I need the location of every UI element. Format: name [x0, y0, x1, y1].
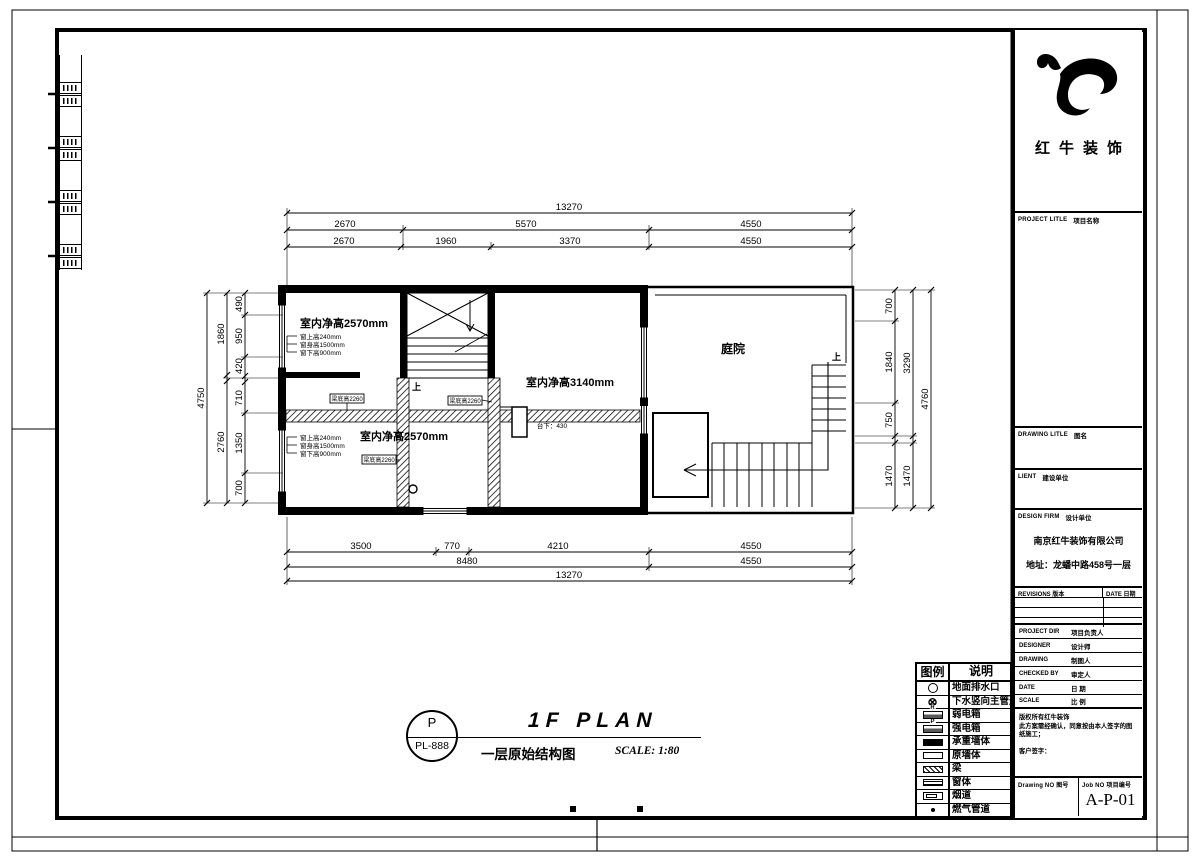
original-wall-icon	[923, 752, 943, 759]
legend-row: 燃气管道	[917, 804, 1010, 817]
plan-subtitle: 一层原始结构图	[481, 743, 576, 763]
title-block: 红牛装饰 PROJECT LITLE 项目名称 DRAWING LITLE 图名…	[1012, 30, 1142, 818]
svg-text:1470: 1470	[884, 465, 895, 486]
legend-row: 原墙体	[917, 750, 1010, 764]
designer-row: DESIGNER设计师	[1015, 639, 1142, 653]
signature-box	[59, 257, 82, 269]
svg-text:770: 770	[444, 541, 460, 552]
client-label-en: LIENT	[1018, 474, 1036, 480]
personnel-table: PROJECT DIR项目负责人 DESIGNER设计师 DRAWING制图人 …	[1015, 625, 1142, 710]
svg-text:1350: 1350	[234, 432, 245, 453]
floor-drain-icon	[928, 683, 938, 693]
legend-row: P 强电箱	[917, 723, 1010, 737]
svg-text:4550: 4550	[740, 556, 761, 567]
svg-text:420: 420	[234, 358, 245, 374]
legend-row: 梁	[917, 763, 1010, 777]
client-signature-line: 客户签字：	[1019, 748, 1138, 757]
design-firm-name: 南京红牛装饰有限公司	[1015, 534, 1142, 547]
svg-text:13270: 13270	[556, 202, 582, 213]
svg-text:4550: 4550	[740, 541, 761, 552]
svg-text:窗身高1500mm: 窗身高1500mm	[300, 441, 345, 450]
svg-text:700: 700	[884, 298, 895, 314]
svg-text:台下：430: 台下：430	[537, 421, 568, 430]
job-number: A-P-01	[1079, 790, 1142, 810]
load-bearing-wall-icon	[923, 739, 943, 746]
revision-row	[1015, 598, 1142, 608]
svg-text:窗下高900mm: 窗下高900mm	[300, 449, 341, 458]
signature-box	[59, 82, 82, 94]
title-underline	[408, 737, 701, 738]
svg-text:1470: 1470	[902, 465, 913, 486]
project-section: PROJECT LITLE 项目名称	[1015, 213, 1142, 428]
job-no-cell: Job NO 项目编号 A-P-01	[1079, 778, 1142, 816]
legend-row: 窗体	[917, 777, 1010, 791]
svg-text:950: 950	[234, 328, 245, 344]
dimension-labels: 13270 2670 5570 4550 2670 1960 3370 4550…	[196, 202, 931, 581]
legend-row: 承重墙体	[917, 736, 1010, 750]
svg-text:2670: 2670	[334, 219, 355, 230]
legend-table: 图例 说明 地面排水口 ⊗ 下水竖向主管道 R 弱电箱 P 强电箱 承重墙体 原…	[915, 662, 1012, 818]
svg-text:3290: 3290	[902, 352, 913, 373]
svg-text:室内净高2570mm: 室内净高2570mm	[300, 316, 388, 330]
beam-icon	[923, 766, 943, 773]
svg-text:490: 490	[234, 296, 245, 312]
design-firm-section: DESIGN FIRM 设计单位 南京红牛装饰有限公司 地址：龙蟠中路458号一…	[1015, 510, 1142, 588]
design-firm-label-zh: 设计单位	[1066, 512, 1092, 522]
svg-text:室内净高2570mm: 室内净高2570mm	[360, 429, 448, 443]
drawing-row: DRAWING制图人	[1015, 653, 1142, 667]
number-row: Drawing NO 图号 Job NO 项目编号 A-P-01	[1015, 778, 1142, 816]
svg-text:窗身高1500mm: 窗身高1500mm	[300, 340, 345, 349]
signature-strip	[59, 55, 82, 270]
signature-box	[59, 244, 82, 256]
bubble-code: PL-888	[406, 740, 458, 752]
svg-text:1960: 1960	[435, 236, 456, 247]
drawing-title-label-en: DRAWING LITLE	[1018, 432, 1068, 438]
signature-box	[59, 203, 82, 215]
revision-row	[1015, 608, 1142, 618]
svg-text:700: 700	[234, 480, 245, 496]
svg-text:窗上高240mm: 窗上高240mm	[300, 433, 341, 442]
drawing-no-label: Drawing NO 图号	[1018, 780, 1069, 789]
svg-text:室内净高3140mm: 室内净高3140mm	[526, 375, 614, 389]
flue-icon	[923, 792, 943, 800]
svg-text:1860: 1860	[216, 323, 227, 344]
svg-text:窗上高240mm: 窗上高240mm	[300, 332, 341, 341]
svg-text:4550: 4550	[740, 236, 761, 247]
project-label-en: PROJECT LITLE	[1018, 217, 1067, 223]
signature-box	[59, 136, 82, 148]
revisions-header: REVISIONS 版本	[1015, 588, 1103, 597]
svg-text:梁底高2260: 梁底高2260	[331, 395, 363, 403]
svg-text:梁底高2260: 梁底高2260	[363, 456, 395, 464]
project-label-zh: 项目名称	[1073, 215, 1099, 225]
gas-pipe-icon	[931, 808, 935, 812]
job-no-label: Job NO 项目编号	[1082, 780, 1131, 789]
svg-text:4760: 4760	[920, 388, 931, 409]
svg-text:4210: 4210	[547, 541, 568, 552]
fold-marks	[570, 806, 643, 812]
red-bull-logo	[1029, 44, 1129, 122]
copyright-notes: 版权所有红牛装饰 此方案需经确认，同意按由本人签字的图纸施工； 客户签字：	[1015, 710, 1142, 778]
scale-row: SCALE比 例	[1015, 695, 1142, 709]
drawing-no-cell: Drawing NO 图号	[1015, 778, 1079, 816]
svg-text:4750: 4750	[196, 387, 207, 408]
svg-text:窗下高900mm: 窗下高900mm	[300, 348, 341, 357]
dimension-lines	[203, 208, 935, 585]
legend-desc-header: 说明	[950, 664, 1010, 680]
svg-text:13270: 13270	[556, 570, 582, 581]
design-firm-address: 地址：龙蟠中路458号一层	[1015, 558, 1142, 571]
bubble-letter: P	[406, 715, 458, 730]
svg-text:2760: 2760	[216, 431, 227, 452]
svg-text:750: 750	[884, 412, 895, 428]
client-label-zh: 建设单位	[1042, 472, 1068, 482]
plan-scale: SCALE: 1:80	[615, 745, 679, 757]
note-line: 版权所有红牛装饰	[1019, 714, 1138, 723]
strong-current-box-icon: P	[923, 725, 943, 733]
drawing-title-section: DRAWING LITLE 图名	[1015, 428, 1142, 470]
svg-text:4550: 4550	[740, 219, 761, 230]
floor-drain-symbol	[409, 485, 417, 493]
revisions-table: REVISIONS 版本 DATE 日期	[1015, 588, 1142, 625]
stairwell	[407, 293, 488, 378]
drawing-title-label-zh: 图名	[1074, 430, 1087, 440]
svg-text:3370: 3370	[559, 236, 580, 247]
signature-box	[59, 149, 82, 161]
client-section: LIENT 建设单位	[1015, 470, 1142, 510]
stair-up-label: 上	[412, 381, 421, 392]
signature-box	[59, 190, 82, 202]
signature-box	[59, 95, 82, 107]
drawing-title-footer: P PL-888 1F PLAN 一层原始结构图 SCALE: 1:80	[395, 706, 725, 770]
svg-text:710: 710	[234, 390, 245, 406]
courtyard-stair-up-label: 上	[832, 351, 841, 362]
project-dir-row: PROJECT DIR项目负责人	[1015, 625, 1142, 639]
beam-tags: 梁底高2260 梁底高2260 梁底高2260	[330, 394, 492, 464]
svg-text:庭院: 庭院	[721, 341, 745, 356]
svg-text:梁底高2260: 梁底高2260	[449, 397, 481, 405]
logo-section: 红牛装饰	[1015, 30, 1142, 213]
legend-row: 烟道	[917, 790, 1010, 804]
brand-name: 红牛装饰	[1015, 137, 1142, 158]
date-header: DATE 日期	[1103, 588, 1139, 597]
svg-text:2670: 2670	[333, 236, 354, 247]
design-firm-label-en: DESIGN FIRM	[1018, 514, 1060, 520]
legend-row: 地面排水口	[917, 682, 1010, 696]
date-row: DATE日 期	[1015, 681, 1142, 695]
svg-text:1840: 1840	[884, 351, 895, 372]
svg-text:5570: 5570	[515, 219, 536, 230]
note-line: 此方案需经确认，同意按由本人签字的图纸施工；	[1019, 723, 1138, 740]
svg-text:3500: 3500	[350, 541, 371, 552]
courtyard	[648, 287, 853, 513]
drawing-sheet: { "brand": {"name": "红牛装饰"}, "title_bloc…	[0, 0, 1200, 860]
plan-title: 1F PLAN	[528, 709, 658, 733]
window-icon	[923, 779, 943, 786]
legend-symbol-header: 图例	[917, 664, 950, 680]
svg-text:8480: 8480	[456, 556, 477, 567]
checked-by-row: CHECKED BY审定人	[1015, 667, 1142, 681]
